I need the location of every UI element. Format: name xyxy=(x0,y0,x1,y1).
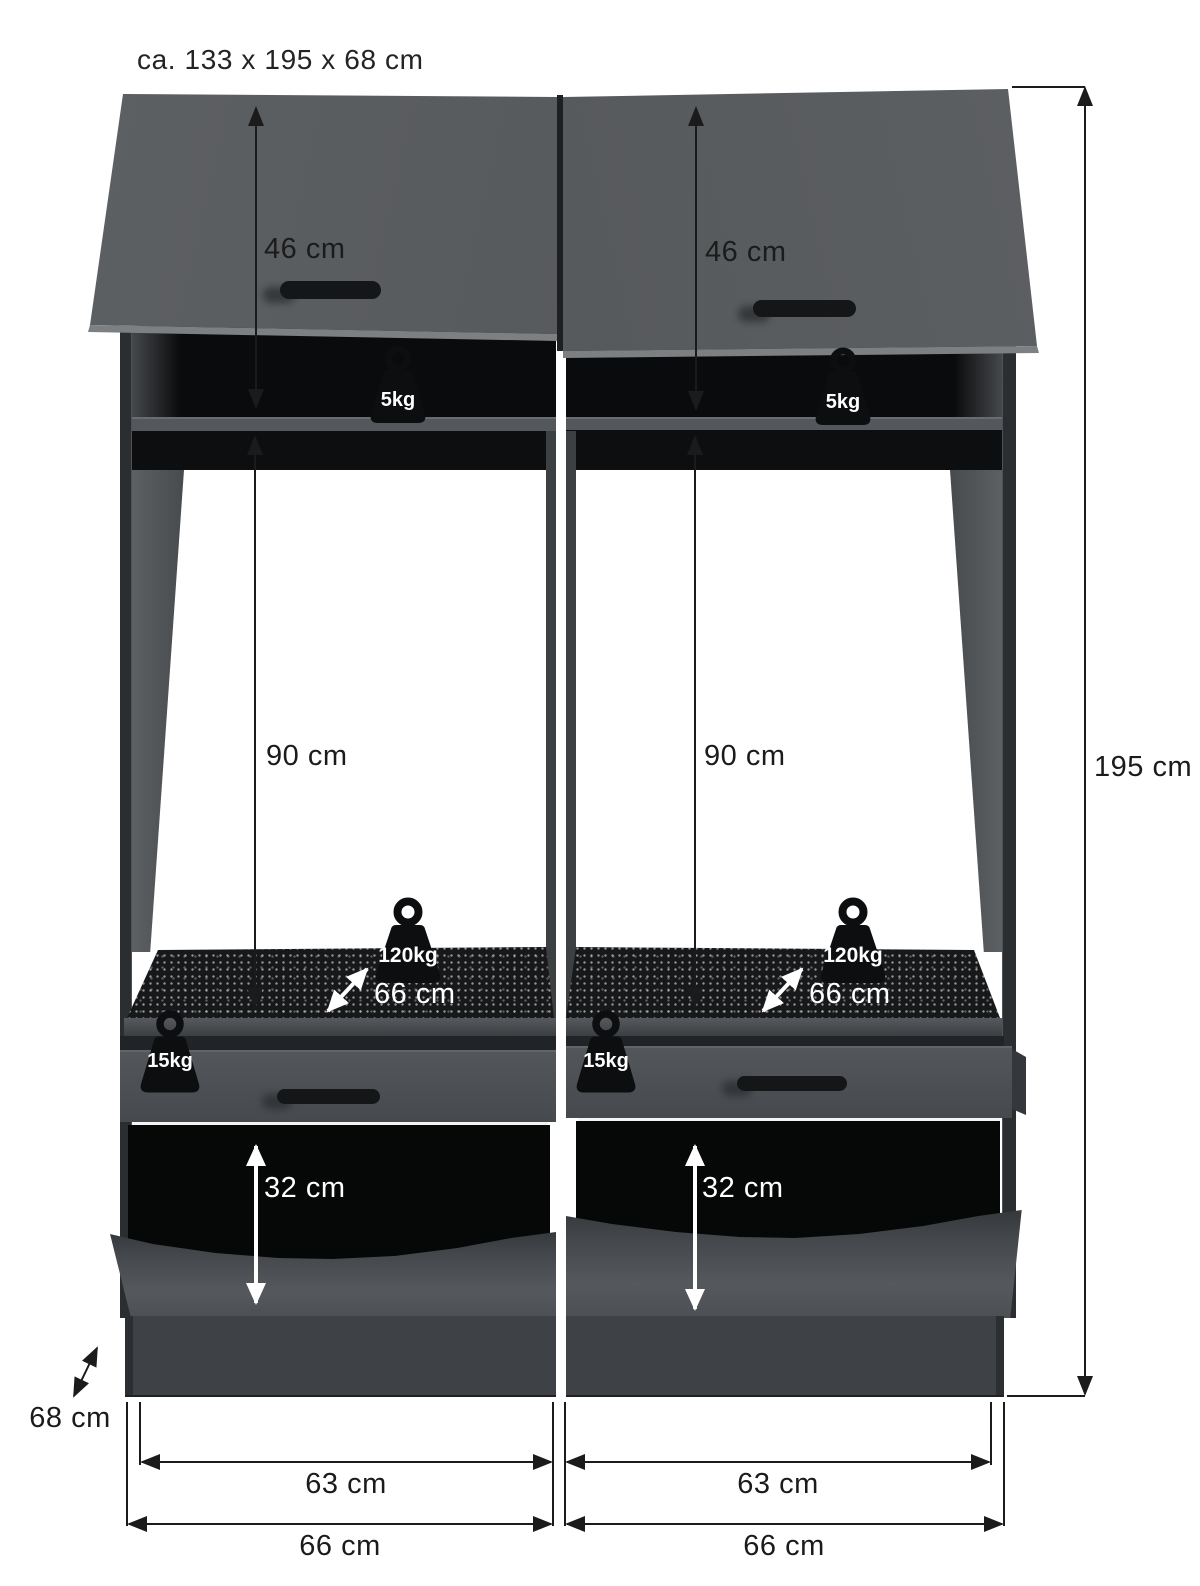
inner-side-face-right xyxy=(950,470,1002,952)
inner-width-label-left: 63 cm xyxy=(296,1468,396,1501)
top-shelf-left xyxy=(132,417,556,431)
drawer-handle-left xyxy=(277,1089,380,1104)
max-load-label: 5kg xyxy=(365,389,431,412)
outer-width-label-right: 66 cm xyxy=(734,1530,834,1563)
center-panel-left-unit xyxy=(546,431,556,1036)
drawer-side-right xyxy=(1012,1049,1026,1115)
shelf-depth-label-right: 66 cm xyxy=(809,978,890,1011)
shelf-depth-label-left: 66 cm xyxy=(374,978,455,1011)
max-load-15kg-icon-left: 15kg xyxy=(135,1010,205,1094)
weight-icon xyxy=(814,897,892,985)
max-load-label: 15kg xyxy=(571,1050,641,1073)
overall-dimensions-title: ca. 133 x 195 x 68 cm xyxy=(137,44,424,76)
plinth-right xyxy=(566,1316,1004,1397)
shelf-underside-right xyxy=(566,430,1002,470)
max-load-15kg-icon-right: 15kg xyxy=(571,1010,641,1094)
door-height-label-left: 46 cm xyxy=(264,233,345,266)
weight-icon xyxy=(810,347,876,427)
outer-width-label-left: 66 cm xyxy=(290,1530,390,1563)
opening-height-label-right: 90 cm xyxy=(704,740,785,773)
door-handle-right xyxy=(753,300,856,317)
opening-height-label-left: 90 cm xyxy=(266,740,347,773)
unit-divider-gap xyxy=(557,95,563,351)
niche-height-label-right: 32 cm xyxy=(702,1172,783,1205)
max-load-label: 5kg xyxy=(810,391,876,414)
top-compartment-left-wall xyxy=(132,326,180,417)
max-load-label: 120kg xyxy=(369,944,447,968)
furniture-dimension-diagram: ca. 133 x 195 x 68 cm xyxy=(0,0,1200,1586)
top-compartment-right-wall xyxy=(954,344,1002,417)
drawer-handle-right xyxy=(737,1076,847,1091)
total-height-label: 195 cm xyxy=(1094,751,1192,784)
depth-label: 68 cm xyxy=(20,1402,120,1435)
niche-height-label-left: 32 cm xyxy=(264,1172,345,1205)
max-load-120kg-icon-right: 120kg xyxy=(814,897,892,985)
max-load-120kg-icon-left: 120kg xyxy=(369,897,447,985)
inner-width-label-right: 63 cm xyxy=(728,1468,828,1501)
max-load-5kg-icon-right: 5kg xyxy=(810,347,876,427)
door-handle-left xyxy=(280,281,381,299)
side-panel-right xyxy=(1002,344,1016,1318)
center-panel-right-unit xyxy=(566,431,576,1036)
top-shelf-right xyxy=(566,417,1002,430)
max-load-label: 15kg xyxy=(135,1050,205,1073)
max-load-5kg-icon-left: 5kg xyxy=(365,345,431,425)
shelf-underside-left xyxy=(132,431,556,470)
inner-side-face-left xyxy=(132,470,184,952)
plinth-left xyxy=(125,1316,556,1397)
max-load-label: 120kg xyxy=(814,944,892,968)
weight-icon xyxy=(369,897,447,985)
door-height-label-right: 46 cm xyxy=(705,236,786,269)
weight-icon xyxy=(365,345,431,425)
